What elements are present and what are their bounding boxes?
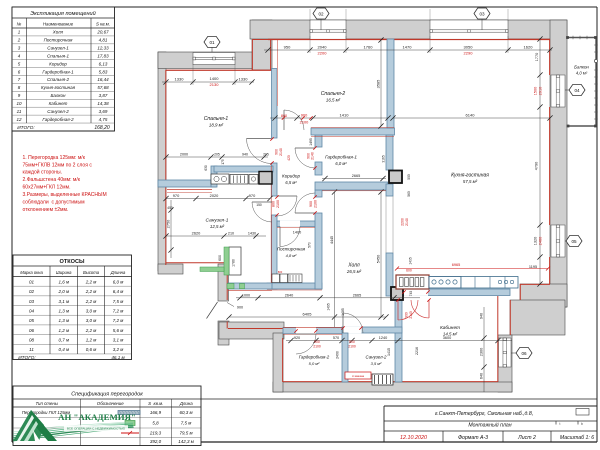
svg-text:16,5 м²: 16,5 м² [326,98,341,103]
svg-text:6,13: 6,13 [99,61,108,66]
svg-text:Балкон: Балкон [50,93,66,98]
svg-text:500: 500 [407,174,411,180]
svg-text:5,8: 5,8 [152,420,159,425]
svg-text:S кв.м.: S кв.м. [96,21,110,26]
svg-text:14,5 м²: 14,5 м² [443,332,458,337]
svg-text:79,5 м: 79,5 м [179,430,192,435]
svg-text:18,9 м²: 18,9 м² [209,123,224,128]
svg-text:12.10.2020: 12.10.2020 [400,435,427,441]
svg-text:450: 450 [167,206,173,210]
svg-text:Формат А-3: Формат А-3 [458,435,488,441]
svg-text:168,20: 168,20 [94,125,110,131]
svg-text:1330: 1330 [175,77,185,82]
svg-text:10: 10 [16,101,22,106]
svg-text:Постирочная: Постирочная [277,247,306,252]
svg-text:08: 08 [29,337,35,342]
svg-text:Кухня-гостиная: Кухня-гостиная [41,85,76,90]
svg-text:1,3 м: 1,3 м [58,308,69,313]
svg-text:5,83: 5,83 [99,69,108,74]
svg-text:2100: 2100 [276,200,280,208]
svg-text:2290: 2290 [464,50,474,55]
svg-text:Постирочная: Постирочная [44,38,73,43]
svg-text:2750: 2750 [166,219,171,228]
svg-text:75мм+ГКЛВ 12мм по 2 слоя с: 75мм+ГКЛВ 12мм по 2 слоя с [23,162,93,168]
svg-text:Коридор: Коридор [282,174,300,179]
svg-text:1430: 1430 [248,232,256,236]
svg-text:ст.машина: ст.машина [352,375,365,378]
svg-text:1000: 1000 [242,293,250,297]
svg-text:2000: 2000 [180,153,188,157]
svg-text:Кабинет: Кабинет [440,325,460,331]
svg-text:ВСЕ ОПЕРАЦИИ С НЕДВИЖИМОСТЬЮ: ВСЕ ОПЕРАЦИИ С НЕДВИЖИМОСТЬЮ [67,427,125,431]
svg-text:отклонением ±2мм.: отклонением ±2мм. [23,207,69,213]
svg-text:2,2 м: 2,2 м [85,279,97,284]
svg-text:3,1 м: 3,1 м [113,337,124,342]
svg-text:Масштаб 1: 6: Масштаб 1: 6 [560,435,594,441]
svg-text:640: 640 [480,373,484,379]
svg-text:г.Санкт-Петербург, Смольная на: г.Санкт-Петербург, Смольная наб.,д.8, [435,411,533,417]
svg-text:3165: 3165 [381,155,385,163]
svg-text:3,0 м: 3,0 м [86,318,97,323]
svg-text:2: 2 [17,38,21,43]
svg-text:11: 11 [17,109,22,114]
svg-text:970: 970 [249,193,256,198]
svg-text:Кухня-гостиная: Кухня-гостиная [451,173,489,179]
svg-text:Высота: Высота [83,270,100,275]
svg-text:745: 745 [409,291,413,297]
svg-text:Спальня-2: Спальня-2 [47,77,69,82]
svg-text:142,3 м: 142,3 м [178,439,194,444]
svg-text:7,5 м: 7,5 м [181,420,192,425]
svg-text:60,3 м: 60,3 м [179,410,192,415]
svg-text:2620: 2620 [192,231,201,236]
svg-text:2200: 2200 [401,218,405,226]
svg-text:940: 940 [242,153,248,157]
svg-text:14,38: 14,38 [97,101,109,106]
svg-text:175: 175 [221,159,225,165]
svg-text:6,4 м: 6,4 м [113,289,124,294]
svg-text:02: 02 [29,289,35,294]
svg-text:Марка окна: Марка окна [20,270,43,275]
svg-text:0,6 м: 0,6 м [86,347,97,352]
svg-text:Коридор: Коридор [49,61,67,66]
svg-text:2640: 2640 [285,293,293,297]
svg-text:Спальня-1: Спальня-1 [204,116,229,122]
svg-text:150: 150 [256,203,262,207]
svg-text:3,1 м: 3,1 м [58,299,69,304]
svg-text:Гардеробная-2: Гардеробная-2 [42,117,74,122]
svg-text:1. Перегородка 125мм: м/к: 1. Перегородка 125мм: м/к [23,155,86,161]
svg-text:Длинна: Длинна [110,270,126,275]
svg-text:3,69: 3,69 [99,109,108,114]
svg-text:5,0 м²: 5,0 м² [309,361,320,366]
svg-text:Холл: Холл [347,263,360,269]
svg-text:1,6 м: 1,6 м [58,279,69,284]
svg-text:Монтажный план: Монтажный план [468,422,511,429]
svg-text:1415: 1415 [387,348,391,356]
svg-text:12,5 м²: 12,5 м² [210,224,225,229]
svg-text:1620: 1620 [524,45,534,50]
svg-text:1,3 м: 1,3 м [58,318,69,323]
svg-text:Санузел-2: Санузел-2 [366,355,387,360]
svg-text:6,0 м: 6,0 м [113,279,124,284]
svg-text:7,2 м: 7,2 м [113,308,124,313]
svg-text:Балкон: Балкон [574,65,589,70]
svg-text:4790: 4790 [535,162,539,170]
svg-text:2216: 2216 [415,347,419,355]
svg-text:7,5 м: 7,5 м [113,299,124,304]
svg-text:4,75: 4,75 [99,117,108,122]
svg-text:560: 560 [407,191,411,197]
svg-text:05: 05 [29,318,35,323]
svg-text:Длина: Длина [179,401,193,406]
svg-text:5,6 м: 5,6 м [113,328,124,333]
svg-text:1330: 1330 [239,77,249,82]
svg-text:3050: 3050 [464,44,474,49]
svg-text:12,33: 12,33 [97,46,109,51]
svg-text:1410: 1410 [340,113,350,118]
svg-text:Экспликация помещений: Экспликация помещений [30,10,96,17]
svg-text:S кв.м.: S кв.м. [148,401,163,406]
svg-text:1770: 1770 [535,53,539,61]
svg-text:920: 920 [294,336,300,340]
svg-text:46,1 м: 46,1 м [111,355,125,360]
svg-text:420: 420 [287,155,291,161]
svg-text:800: 800 [278,270,283,274]
svg-text:2200: 2200 [318,50,328,55]
svg-text:16,44: 16,44 [97,77,109,82]
svg-text:4445: 4445 [330,236,334,244]
svg-text:1495: 1495 [327,303,331,311]
svg-text:1435: 1435 [409,257,413,265]
svg-text:ИТОГО:: ИТОГО: [18,355,36,361]
svg-text:970: 970 [173,193,180,198]
svg-text:04: 04 [574,88,580,93]
svg-text:2100: 2100 [313,200,317,208]
svg-text:2100: 2100 [348,344,356,348]
svg-text:2140: 2140 [279,148,283,156]
svg-text:0,4 м: 0,4 м [58,347,69,352]
svg-text:06: 06 [29,328,35,333]
svg-text:2100: 2100 [300,120,309,125]
svg-text:940: 940 [480,313,484,319]
svg-text:b: b [581,422,583,426]
svg-text:1495: 1495 [309,138,313,146]
svg-text:2140: 2140 [405,218,409,226]
svg-text:2,2 м: 2,2 м [85,299,97,304]
svg-text:2665: 2665 [352,174,360,178]
svg-text:57,5 м²: 57,5 м² [463,179,478,184]
svg-text:ОТКОСЫ: ОТКОСЫ [59,259,85,265]
svg-text:Гардеробная-1: Гардеробная-1 [325,155,357,160]
svg-text:2040: 2040 [318,44,328,49]
svg-text:2140: 2140 [311,152,315,160]
svg-text:4,8 м²: 4,8 м² [286,253,297,258]
svg-text:60х27мм+ГКЛ 12мм.: 60х27мм+ГКЛ 12мм. [23,185,71,191]
svg-text:20,67: 20,67 [96,30,109,35]
svg-text:Холл: Холл [52,30,64,35]
svg-text:900: 900 [405,312,409,318]
svg-text:1400: 1400 [293,231,301,235]
svg-text:Гардеробная-2: Гардеробная-2 [299,355,330,360]
svg-text:17,83: 17,83 [97,53,109,58]
svg-text:26,5 м²: 26,5 м² [346,269,362,274]
svg-text:2,0 м: 2,0 м [57,289,69,294]
svg-text:3,0 м: 3,0 м [86,308,97,313]
svg-text:1760: 1760 [364,45,374,50]
svg-text:1240: 1240 [379,336,387,340]
svg-text:11: 11 [29,347,34,352]
svg-text:570: 570 [308,242,312,248]
svg-text:2665: 2665 [353,293,361,297]
svg-text:Тип стены: Тип стены [35,401,58,406]
svg-text:6,0 м²: 6,0 м² [335,161,347,166]
svg-text:t: t [560,422,561,426]
svg-text:1,2 м: 1,2 м [58,328,69,333]
svg-text:6,5 м²: 6,5 м² [285,180,297,185]
svg-text:7,2 м: 7,2 м [113,318,124,323]
svg-text:2910: 2910 [539,87,543,95]
svg-text:600: 600 [406,269,412,273]
svg-text:Спальня-2: Спальня-2 [321,91,346,97]
svg-text:Гардеробная-1: Гардеробная-1 [42,69,74,74]
svg-text:2100: 2100 [313,344,321,348]
svg-text:3,87: 3,87 [99,93,108,98]
svg-text:3600: 3600 [443,336,451,340]
svg-text:04: 04 [29,308,35,313]
svg-text:57,68: 57,68 [97,85,109,90]
svg-text:2.Фальшстена 40мм: м/к: 2.Фальшстена 40мм: м/к [23,177,81,183]
svg-text:210: 210 [228,232,234,236]
svg-text:2300: 2300 [480,348,484,356]
svg-text:1780: 1780 [232,259,236,267]
svg-text:630: 630 [204,165,208,171]
svg-text:2020: 2020 [210,193,219,198]
svg-text:Санузел-2: Санузел-2 [47,109,69,114]
svg-text:1470: 1470 [403,45,413,50]
svg-text:Наименование: Наименование [43,21,74,26]
svg-text:Санузел-1: Санузел-1 [47,46,69,51]
svg-text:570: 570 [333,336,339,340]
svg-text:Кабинет: Кабинет [49,101,68,106]
svg-text:2,2 м: 2,2 м [85,289,97,294]
svg-text:12: 12 [16,117,22,122]
svg-text:01: 01 [29,279,35,284]
svg-text:ИТОГО:: ИТОГО: [17,125,35,131]
svg-text:03: 03 [479,11,485,16]
svg-text:5450: 5450 [377,255,381,263]
svg-text:1500: 1500 [534,87,538,95]
svg-text:2140: 2140 [409,311,413,319]
svg-text:2490: 2490 [336,351,340,359]
svg-text:Ширина: Ширина [56,270,72,275]
svg-text:950: 950 [284,45,291,50]
svg-text:600: 600 [218,255,222,261]
svg-text:01: 01 [209,40,215,45]
svg-text:№: № [17,21,22,26]
svg-text:1320: 1320 [534,237,538,245]
svg-text:АН "АКАДЕМИЯ": АН "АКАДЕМИЯ" [58,412,136,422]
svg-text:6140: 6140 [466,113,476,118]
svg-text:205: 205 [263,153,269,157]
svg-text:166,9: 166,9 [150,410,162,415]
svg-text:1,2 м: 1,2 м [86,337,97,342]
svg-text:Обозначение: Обозначение [97,401,124,406]
svg-text:392,0: 392,0 [150,439,162,444]
svg-text:3585: 3585 [376,80,381,89]
svg-text:02: 02 [318,11,324,16]
svg-text:4,0 м²: 4,0 м² [576,71,588,76]
svg-text:0,7 м: 0,7 м [58,337,69,342]
svg-text:06: 06 [521,351,527,356]
svg-text:2460: 2460 [539,237,543,245]
svg-text:03: 03 [29,299,35,304]
svg-text:Спецификация перегородок: Спецификация перегородок [71,392,143,398]
svg-text:900: 900 [237,306,243,310]
svg-text:3,2 м: 3,2 м [113,347,124,352]
svg-text:Санузел-1: Санузел-1 [206,218,229,224]
svg-text:6965: 6965 [452,263,460,267]
svg-text:каждой стороны.: каждой стороны. [23,169,63,176]
svg-text:4,81: 4,81 [99,38,108,43]
svg-text:05: 05 [571,239,577,244]
svg-text:Спальня-1: Спальня-1 [47,53,69,58]
svg-text:соблюдали с допустимым: соблюдали с допустимым [23,200,86,206]
svg-text:1400: 1400 [210,76,220,81]
svg-text:2,2 м: 2,2 м [85,328,97,333]
svg-text:205: 205 [214,153,220,157]
svg-text:3,5 м²: 3,5 м² [371,361,382,366]
svg-text:2130: 2130 [210,82,220,87]
svg-text:Лист 2: Лист 2 [517,435,536,441]
svg-text:3.Размеры, выделенные КРАСНЫМ: 3.Размеры, выделенные КРАСНЫМ [23,192,107,198]
svg-text:6405: 6405 [303,312,313,317]
svg-text:219,3: 219,3 [149,430,162,435]
svg-text:1485: 1485 [341,308,345,316]
